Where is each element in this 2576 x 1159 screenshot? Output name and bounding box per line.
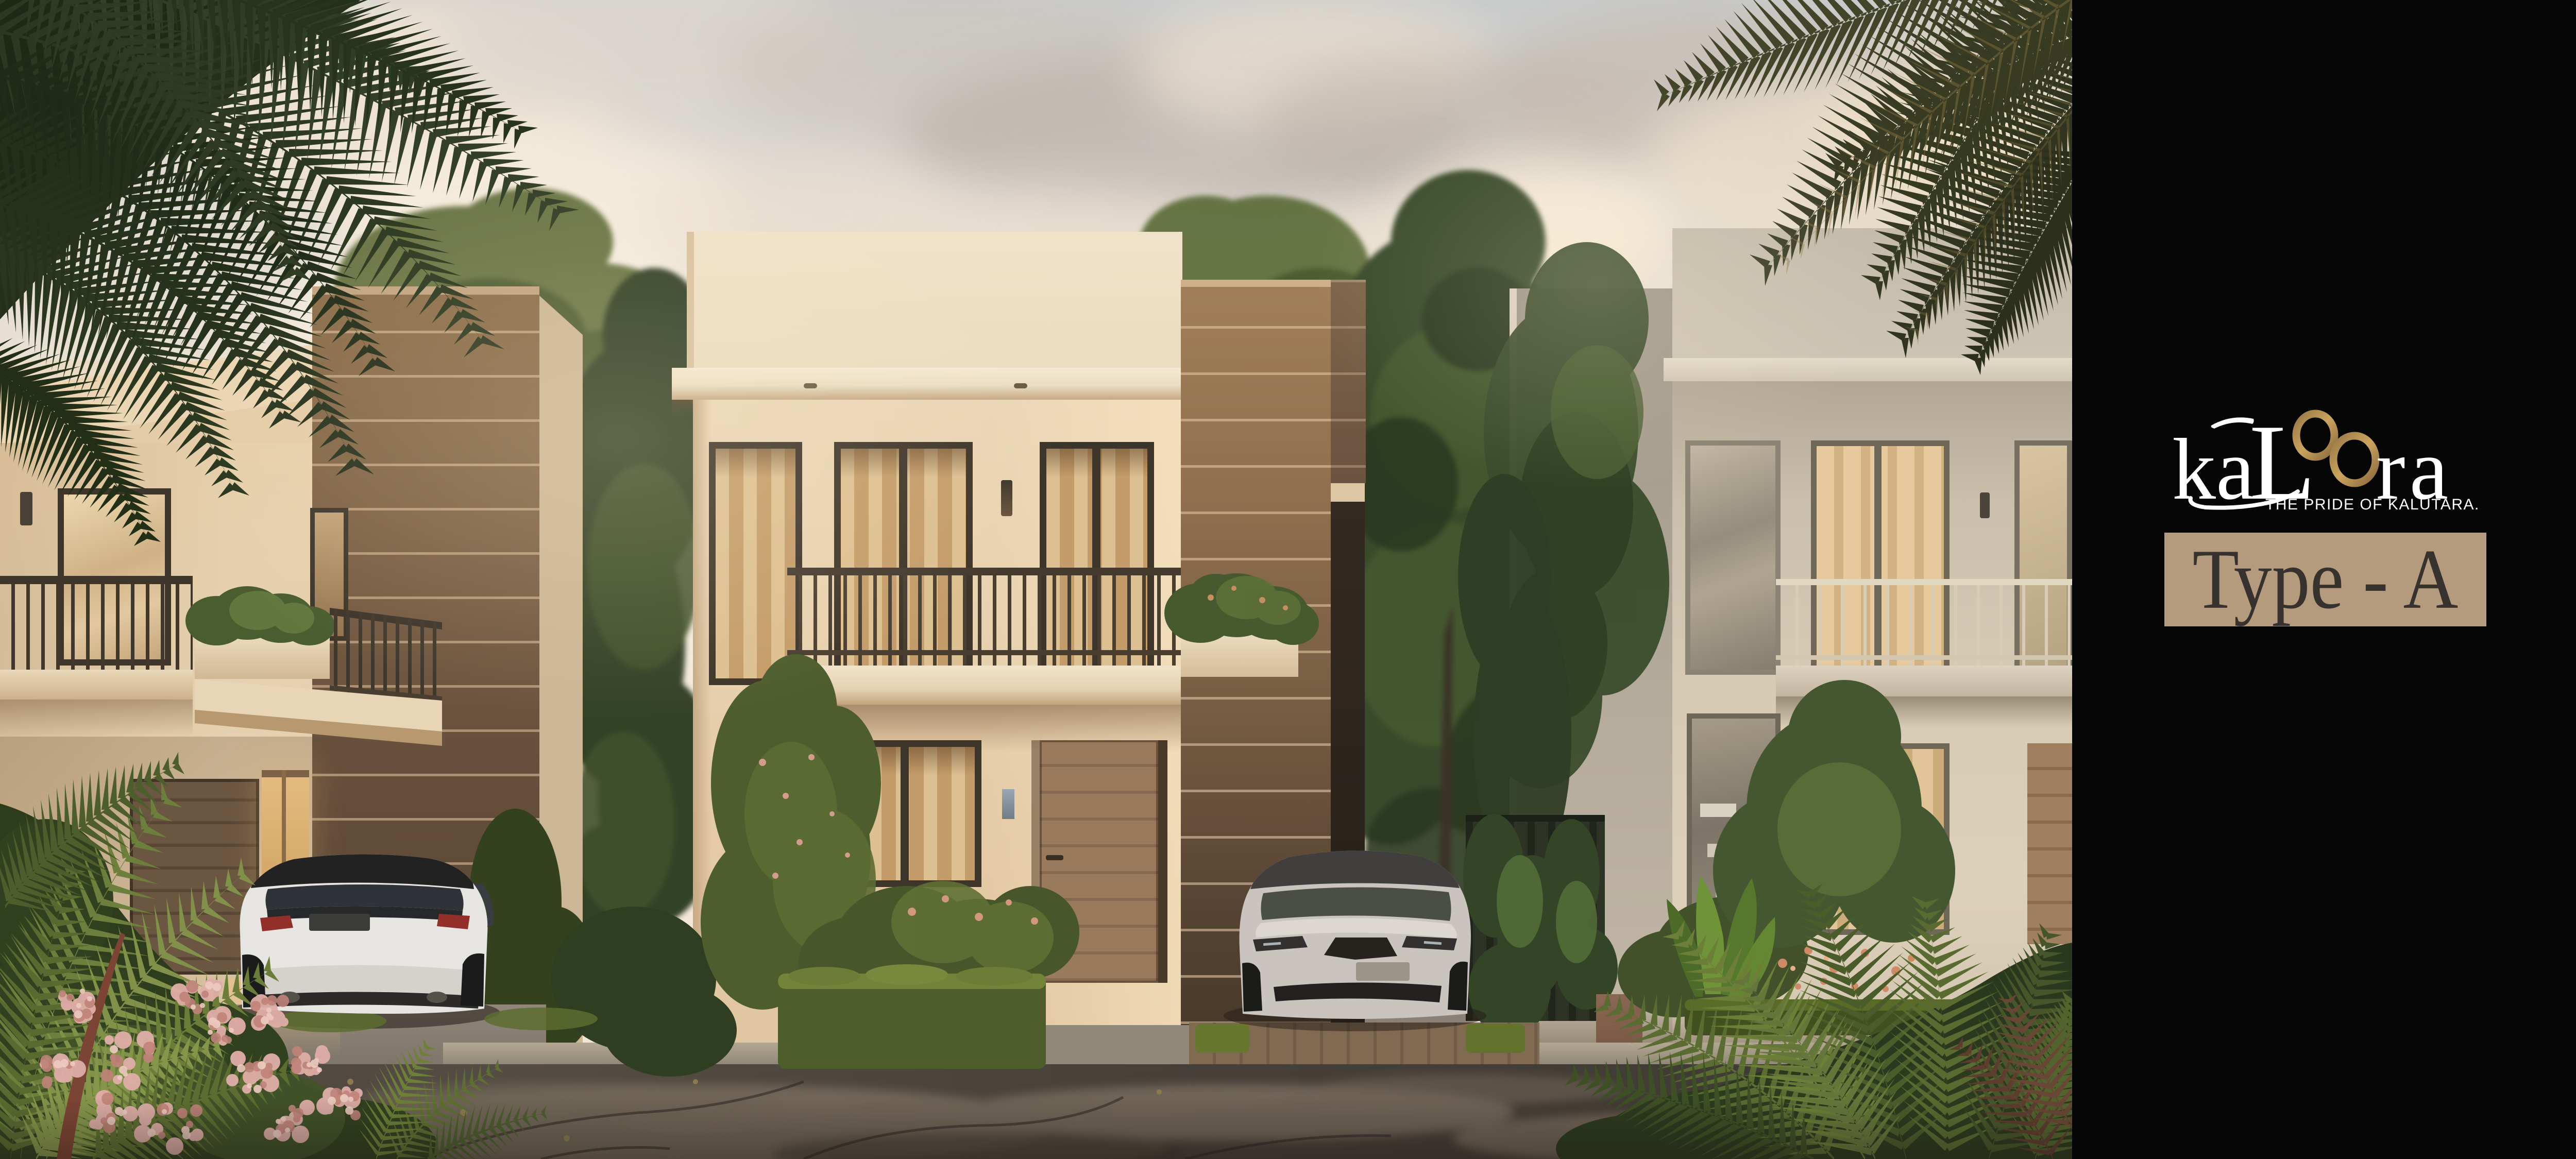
svg-text:ka: ka	[2172, 421, 2255, 518]
svg-text:THE PRIDE OF KALUTARA.: THE PRIDE OF KALUTARA.	[2265, 496, 2480, 513]
